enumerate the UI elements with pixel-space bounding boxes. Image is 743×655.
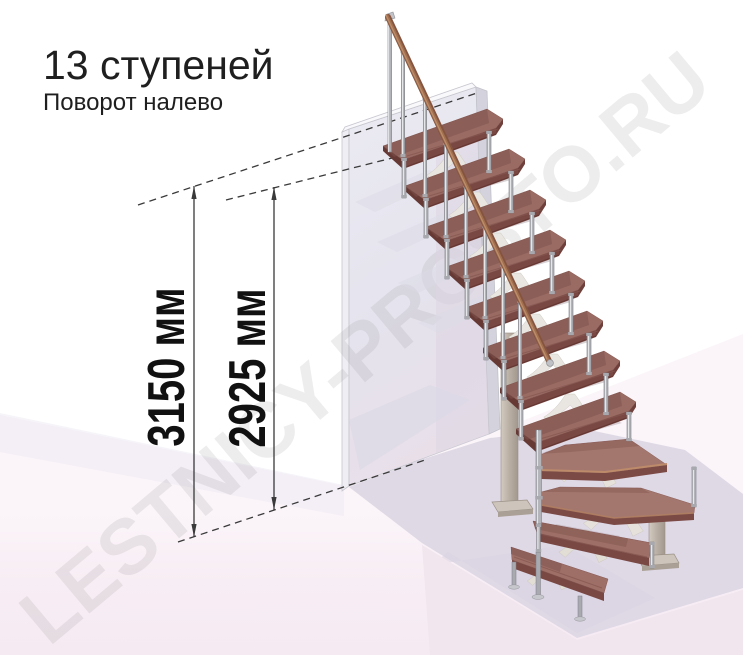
svg-text:3150 мм: 3150 мм: [137, 287, 195, 446]
svg-text:Поворот налево: Поворот налево: [43, 89, 223, 116]
svg-text:13 ступеней: 13 ступеней: [43, 42, 274, 88]
svg-text:2925 мм: 2925 мм: [218, 288, 276, 447]
